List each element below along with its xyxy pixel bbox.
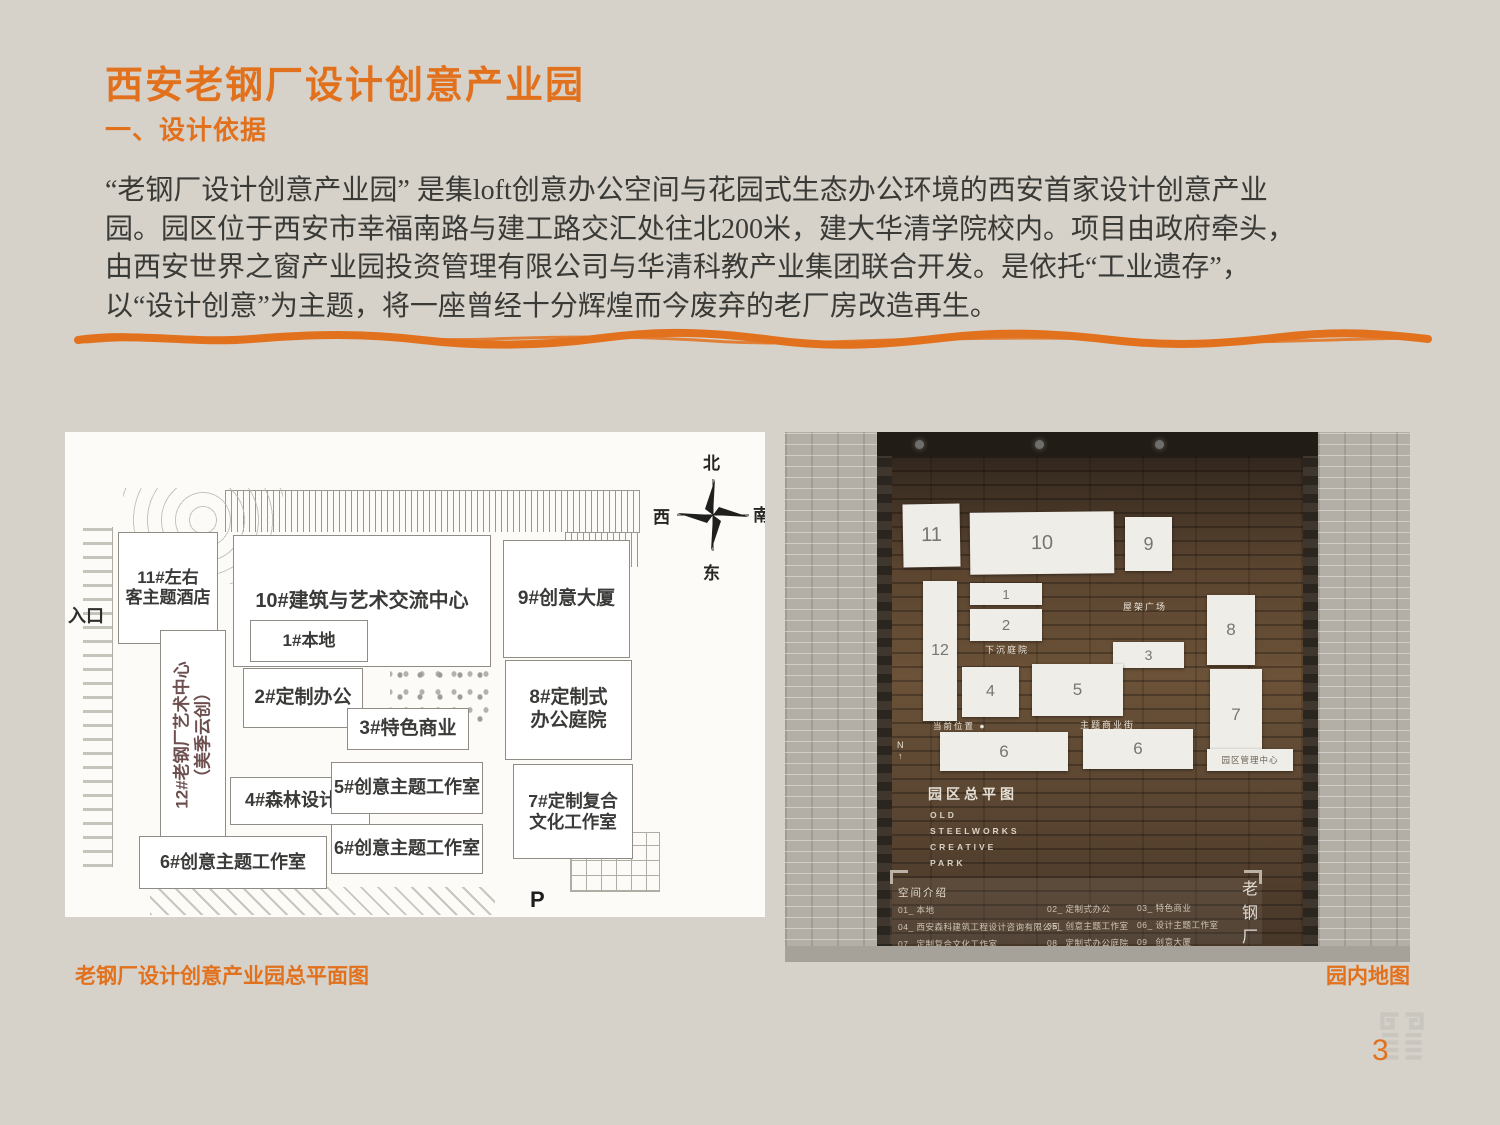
wall-panel-6b: 6 <box>1083 729 1193 769</box>
page-number: 3 <box>1372 1034 1389 1068</box>
spotlight-icon <box>1035 440 1044 449</box>
intro-paragraph: “老钢厂设计创意产业园” 是集loft创意办公空间与花园式生态办公环境的西安首家… <box>105 172 1415 326</box>
wall-sign-title: 园区总平图 <box>928 784 1018 804</box>
brick-wall-left <box>785 432 877 962</box>
intro-line: 以“设计创意”为主题，将一座曾经十分辉煌而今废弃的老厂房改造再生。 <box>105 288 1415 327</box>
plan-tree-row <box>225 490 640 532</box>
plan-parking-label: P <box>530 887 545 913</box>
intro-line: 由西安世界之窗产业园投资管理有限公司与华清科教产业集团联合开发。是依托“工业遗存… <box>105 249 1415 288</box>
wall-panel-12: 12 <box>923 581 957 721</box>
wall-panel-9: 9 <box>1125 517 1172 571</box>
hand-drawn-divider <box>72 327 1434 351</box>
wall-edge-right <box>1303 432 1318 962</box>
plan-building-2: 2#定制办公 <box>243 668 363 728</box>
plan-entrance-label: 入口 <box>68 602 104 628</box>
plan-building-7: 7#定制复合 文化工作室 <box>513 764 633 859</box>
compass-south-label: 南 <box>753 501 765 526</box>
wall-panel-8: 8 <box>1207 595 1255 665</box>
plan-building-6b: 6#创意主题工作室 <box>331 824 483 874</box>
wall-panel-6a: 6 <box>940 732 1068 771</box>
wall-panel-management: 园区管理中心 <box>1207 749 1293 771</box>
plan-building-6a: 6#创意主题工作室 <box>139 836 327 889</box>
plan-building-5: 5#创意主题工作室 <box>331 762 483 814</box>
wall-label-commercial-street: 主题商业街 <box>1080 718 1135 731</box>
photo-bottom-strip <box>785 946 1410 962</box>
north-label: N <box>897 740 904 750</box>
plan-building-12-label: 12#老钢厂艺术中心 （美季云创） <box>172 661 214 808</box>
wall-sign-en-line: PARK <box>930 858 965 868</box>
plan-road-strip <box>83 527 113 867</box>
plan-building-11: 11#左右 客主题酒店 <box>118 532 218 644</box>
legend-item: 01_ 本地 <box>898 904 935 916</box>
plan-building-12: 12#老钢厂艺术中心 （美季云创） <box>160 630 226 840</box>
plan-building-3: 3#特色商业 <box>347 708 469 750</box>
wall-sign-en-line: STEELWORKS <box>930 826 1020 836</box>
wall-label-current-location: 当前位置 ● <box>933 720 987 732</box>
legend-item: 04_ 西安森科建筑工程设计咨询有限公司 <box>898 921 1061 933</box>
legend-item: 03_ 特色商业 <box>1137 902 1192 914</box>
compass-east-label: 东 <box>703 559 720 584</box>
site-plan-image: 11#左右 客主题酒店 10#建筑与艺术交流中心 9#创意大厦 1#本地 2#定… <box>65 432 765 917</box>
section-heading: 一、设计依据 <box>105 110 267 147</box>
legend-item: 05_ 创意主题工作室 <box>1047 920 1129 932</box>
north-arrow-icon: ↑ <box>898 751 903 761</box>
plan-building-9: 9#创意大厦 <box>503 540 630 658</box>
wall-label-sunken-court: 下沉庭院 <box>985 643 1029 656</box>
compass-north-label: 北 <box>703 449 720 474</box>
plan-building-8: 8#定制式 办公庭院 <box>505 660 632 760</box>
wall-map-caption: 园内地图 <box>1326 960 1410 990</box>
brick-wall-right <box>1318 432 1410 962</box>
wall-sign-en-line: CREATIVE <box>930 842 996 852</box>
plan-bottom-texture <box>150 887 495 915</box>
spotlight-icon <box>915 440 924 449</box>
plan-building-1: 1#本地 <box>250 620 368 662</box>
wall-panel-11: 11 <box>902 504 960 568</box>
wall-label-roof-plaza: 屋架广场 <box>1123 600 1167 613</box>
compass-star-icon <box>673 475 753 555</box>
wall-panel-10: 10 <box>970 511 1115 575</box>
wall-panel-5: 5 <box>1032 664 1123 716</box>
compass-rose: 北 西 南 东 <box>645 447 765 597</box>
photo-top-band <box>877 432 1318 456</box>
wall-panel-4: 4 <box>962 667 1019 717</box>
wall-panel-2: 2 <box>970 609 1042 641</box>
wall-sign-en-line: OLD <box>930 810 957 820</box>
intro-line: 园。园区位于西安市幸福南路与建工路交汇处往北200米，建大华清学院校内。项目由政… <box>105 211 1415 250</box>
wall-panel-7: 7 <box>1210 669 1262 761</box>
page-title: 西安老钢厂设计创意产业园 <box>105 54 585 109</box>
wall-panel-1: 1 <box>970 583 1042 605</box>
presentation-slide: 西安老钢厂设计创意产业园 一、设计依据 “老钢厂设计创意产业园” 是集loft创… <box>0 0 1500 1125</box>
spotlight-icon <box>1155 440 1164 449</box>
legend-title: 空间介绍 <box>898 885 948 900</box>
site-plan-caption: 老钢厂设计创意产业园总平面图 <box>75 960 369 990</box>
legend-item: 06_ 设计主题工作室 <box>1137 919 1219 931</box>
intro-line: “老钢厂设计创意产业园” 是集loft创意办公空间与花园式生态办公环境的西安首家… <box>105 172 1415 211</box>
wall-panel-3: 3 <box>1113 642 1184 668</box>
vertical-brand-sign: 老钢厂 <box>1235 880 1259 952</box>
corner-bracket-icon <box>890 870 908 884</box>
legend-item: 02_ 定制式办公 <box>1047 903 1111 915</box>
park-map-photo: 11 10 9 1 2 12 8 3 4 5 7 6 6 园区管理中心 屋架广场… <box>785 432 1410 962</box>
wall-north-indicator: N ↑ <box>897 740 904 762</box>
compass-west-label: 西 <box>653 503 670 528</box>
